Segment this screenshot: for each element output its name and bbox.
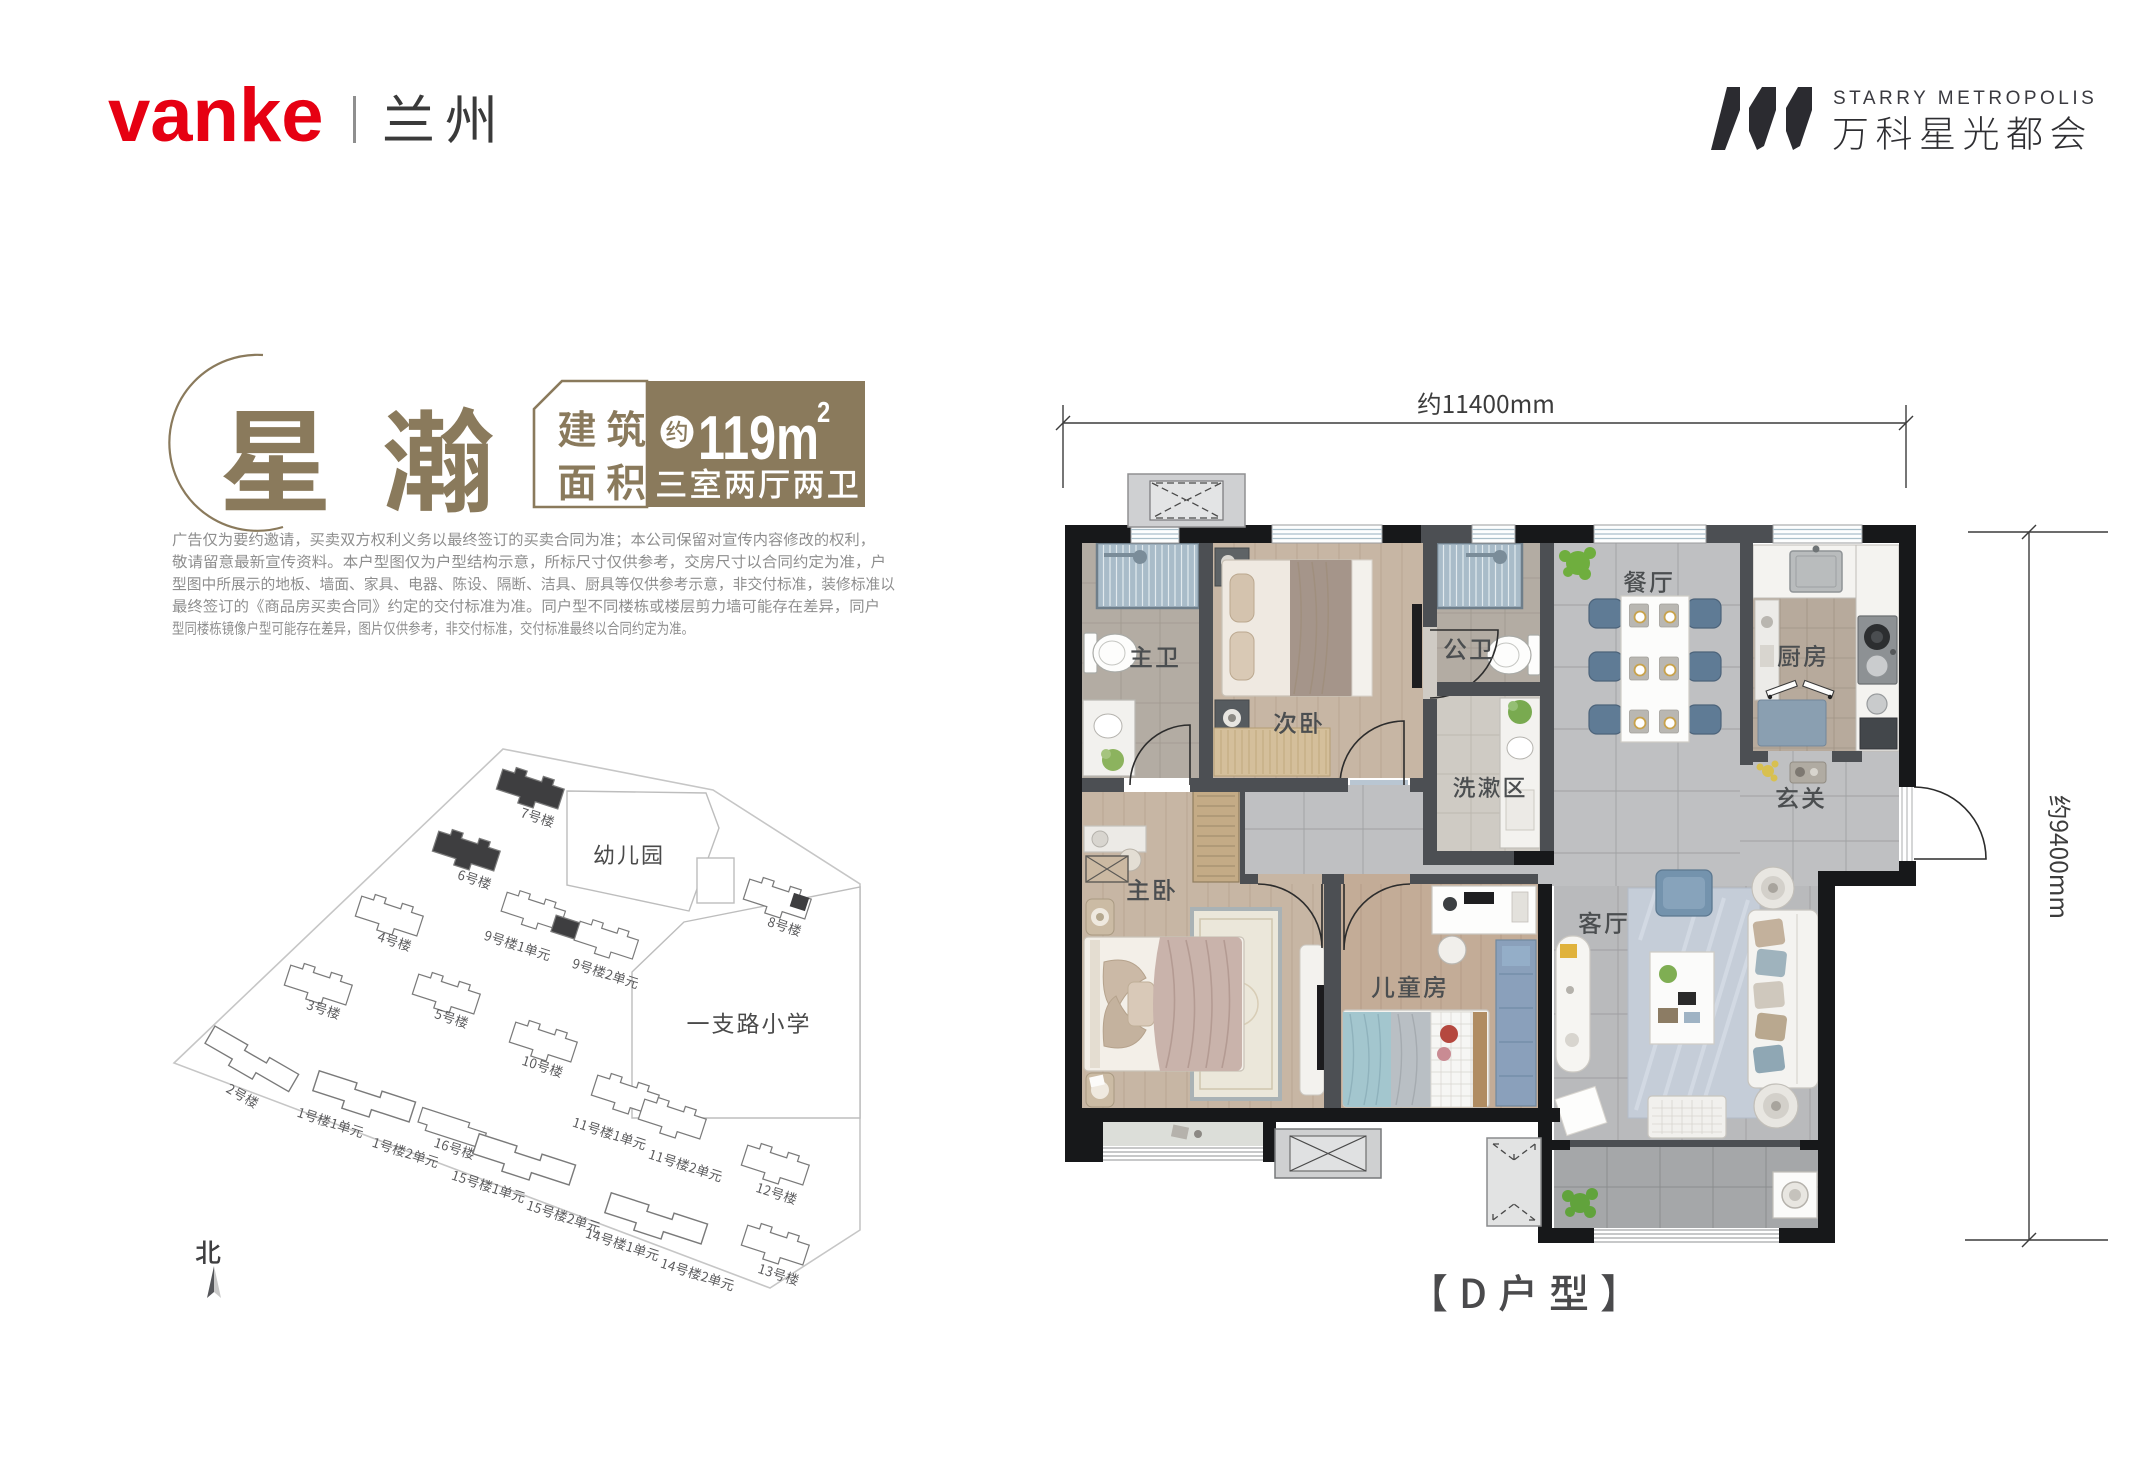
svg-text:119m: 119m — [698, 403, 819, 472]
svg-text:vanke: vanke — [108, 73, 324, 158]
svg-text:STARRY METROPOLIS: STARRY METROPOLIS — [1833, 88, 2097, 109]
svg-text:2: 2 — [817, 396, 830, 429]
